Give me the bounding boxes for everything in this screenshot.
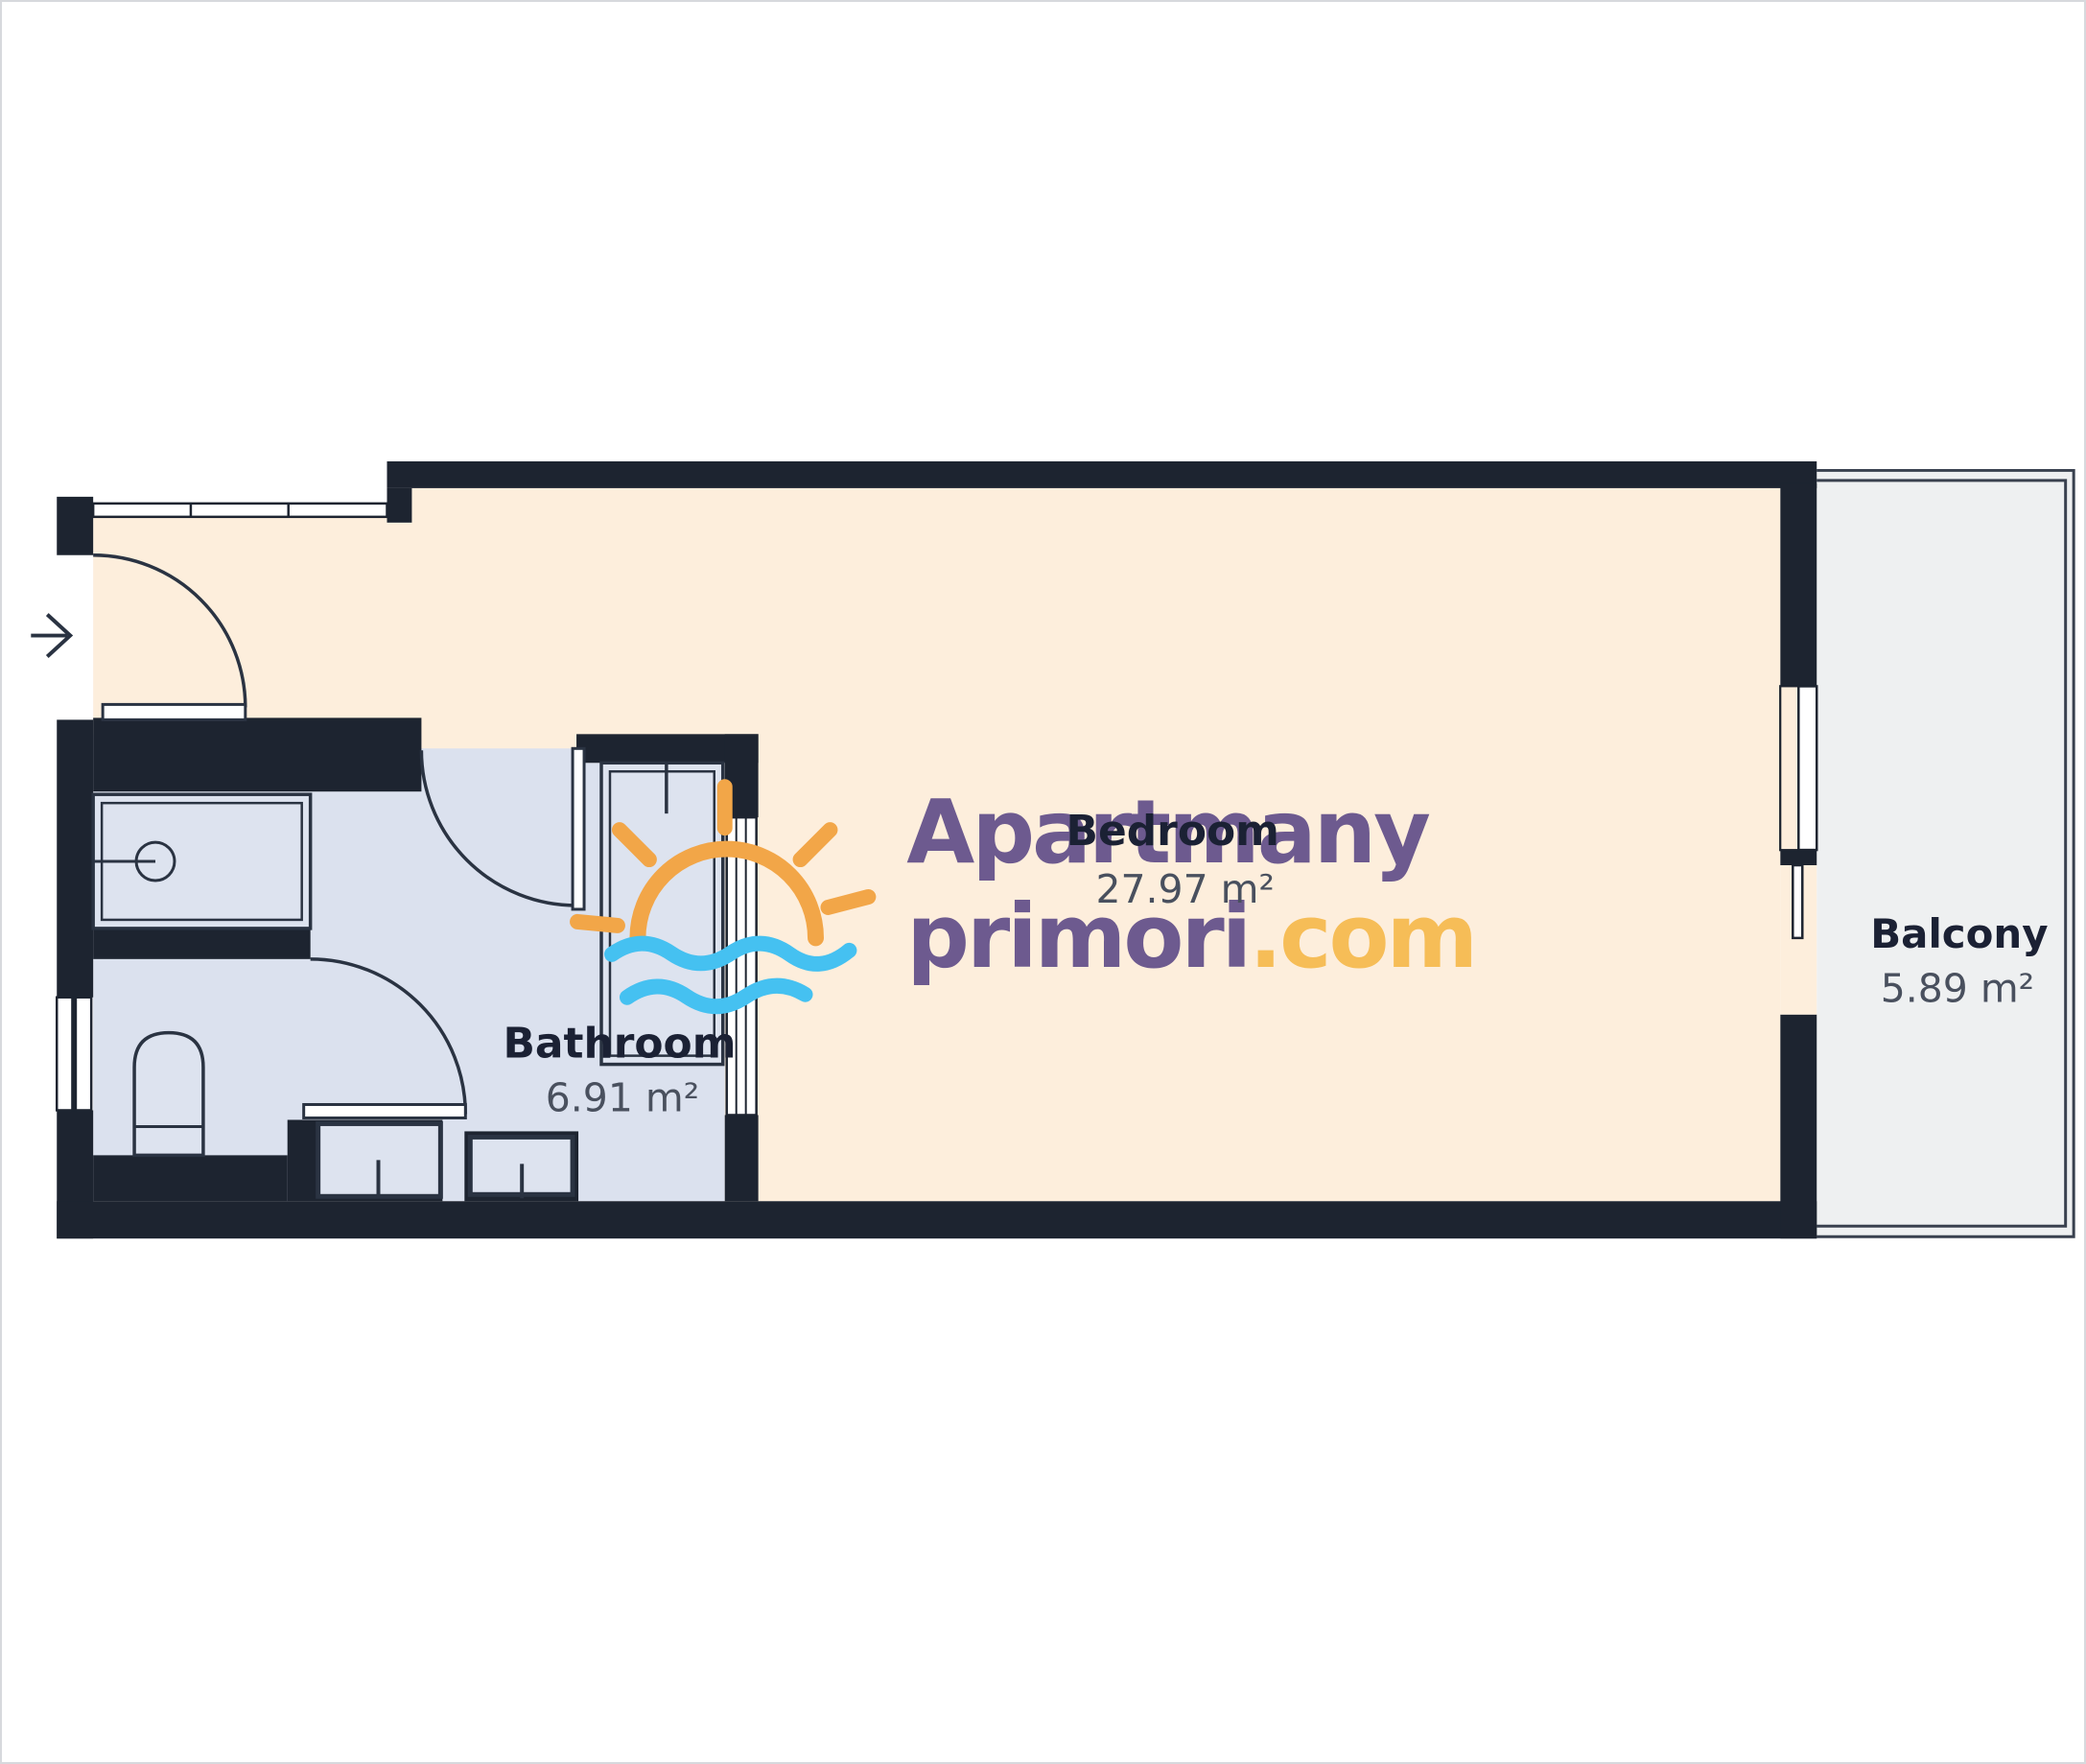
wall-right-block — [1780, 850, 1816, 865]
bathroom-area: 6.91 m² — [546, 1074, 699, 1120]
wall-top-step — [387, 488, 411, 523]
wall-bathroom-top — [93, 717, 421, 791]
glazed-partition — [727, 817, 757, 1115]
bathroom-door-leaf — [573, 748, 584, 909]
bathroom-label: Bathroom — [503, 1020, 736, 1069]
balcony-area: 5.89 m² — [1881, 966, 2034, 1012]
balcony-window-inner-pane — [1781, 687, 1797, 849]
balcony-floor — [1816, 469, 2074, 1238]
bedroom-area: 27.97 m² — [1095, 866, 1274, 912]
wall-top-main — [387, 461, 1816, 488]
entry-door-leaf — [103, 704, 246, 719]
toilet-icon — [134, 1033, 203, 1156]
entry-window — [93, 504, 387, 517]
balcony-label: Balcony — [1870, 910, 2048, 957]
wall-right-top — [1780, 483, 1816, 687]
shower-inner — [610, 771, 715, 1055]
floor-plan-page: Apartmany primori.com Bedroom 27.97 m² B… — [0, 0, 2086, 1764]
entry-arrow-icon — [31, 615, 70, 657]
bathroom-window-mullion — [71, 998, 77, 1111]
wall-topleft-block — [57, 497, 93, 555]
floor-plan-svg: Apartmany primori.com Bedroom 27.97 m² B… — [2, 2, 2084, 1762]
wall-tub-stub — [93, 929, 311, 959]
balcony-door-panel — [1793, 865, 1802, 938]
logo-line-2-suffix: .com — [1249, 885, 1475, 988]
wall-left-mid — [57, 719, 93, 997]
wall-bottomleft-block — [93, 1155, 288, 1201]
wall-below-glazing — [725, 1115, 759, 1201]
wc-door-leaf — [304, 1104, 466, 1117]
bedroom-label: Bedroom — [1066, 807, 1279, 856]
wall-bottom — [57, 1201, 1816, 1238]
wall-right-low — [1780, 1015, 1816, 1238]
